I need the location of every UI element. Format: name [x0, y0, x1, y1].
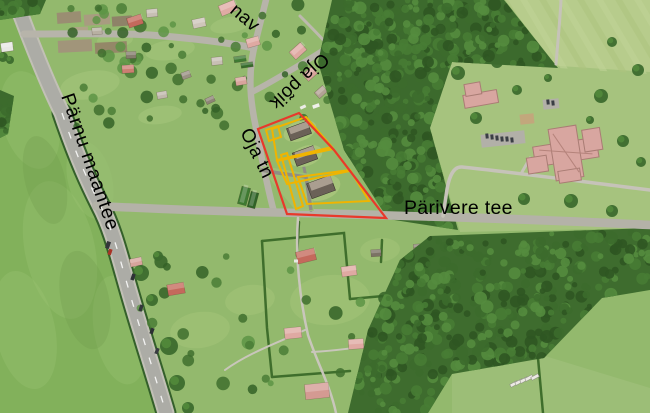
tree-blob: [483, 50, 495, 62]
tree-blob: [457, 7, 469, 19]
tree-blob: [380, 382, 392, 394]
tree-blob: [361, 158, 367, 164]
tree-blob: [486, 283, 495, 292]
tree-blob: [624, 253, 635, 264]
tree-blob: [514, 346, 525, 357]
tree-highlight: [183, 403, 190, 410]
tree-blob: [337, 72, 342, 77]
tree-blob: [355, 147, 365, 157]
tree-blob: [511, 320, 520, 329]
tree-blob: [572, 282, 577, 287]
parked-car: [546, 99, 550, 104]
tree-blob: [425, 96, 431, 102]
tree-blob: [216, 377, 230, 391]
tree-blob: [365, 80, 377, 92]
tree-blob: [412, 55, 417, 60]
tree-blob: [158, 26, 169, 37]
tree-blob: [485, 330, 493, 338]
tree-blob: [330, 72, 335, 77]
tree-blob: [361, 52, 367, 58]
tree-blob: [397, 191, 403, 197]
tree-blob: [544, 296, 550, 302]
tree-blob: [406, 280, 415, 289]
tree-blob: [396, 333, 402, 339]
tree-highlight: [545, 75, 549, 79]
tree-blob: [452, 293, 461, 302]
tree-blob: [415, 67, 427, 79]
tree-blob: [513, 40, 519, 46]
tree-blob: [400, 345, 407, 352]
street-label-parivere-tee: Pärivere tee: [404, 197, 513, 219]
parked-car: [500, 136, 504, 141]
tree-blob: [412, 91, 424, 103]
tree-blob: [347, 104, 359, 116]
tree-blob: [479, 42, 487, 50]
tree-blob: [403, 20, 411, 28]
tree-blob: [440, 68, 449, 77]
tree-blob: [147, 115, 153, 121]
tree-blob: [464, 310, 471, 317]
tree-blob: [519, 297, 525, 303]
tree-blob: [437, 288, 443, 294]
tree-blob: [637, 239, 648, 250]
tree-blob: [436, 12, 445, 21]
tree-blob: [625, 244, 635, 254]
tree-blob: [219, 120, 229, 130]
tree-highlight: [587, 117, 591, 121]
tree-blob: [386, 1, 394, 9]
tree-blob: [474, 292, 487, 305]
tree-blob: [593, 232, 604, 243]
tree-blob: [403, 114, 410, 121]
tree-blob: [423, 187, 429, 193]
tree-blob: [368, 390, 376, 398]
tree-blob: [565, 291, 574, 300]
tree-blob: [490, 22, 496, 28]
tree-blob: [351, 94, 362, 105]
school-building: [526, 155, 548, 174]
parking-lot: [543, 98, 560, 110]
tree-blob: [381, 113, 392, 124]
tree-blob: [534, 294, 542, 302]
tree-blob: [297, 26, 306, 35]
tree-blob: [380, 402, 386, 408]
tree-blob: [282, 71, 288, 77]
tree-blob: [427, 279, 437, 289]
tree-highlight: [154, 252, 160, 258]
tree-blob: [352, 5, 358, 11]
tree-blob: [3, 128, 9, 134]
tree-blob: [411, 44, 421, 54]
tree-blob: [400, 398, 406, 404]
tree-blob: [8, 6, 17, 15]
tree-blob: [567, 276, 573, 282]
tree-blob: [406, 61, 411, 66]
tree-blob: [372, 63, 382, 73]
tree-blob: [495, 308, 507, 320]
tree-blob: [363, 92, 374, 103]
tree-blob: [218, 37, 224, 43]
tree-blob: [552, 241, 560, 249]
tree-blob: [80, 84, 88, 92]
tree-blob: [518, 242, 530, 254]
tree-blob: [408, 119, 415, 126]
tree-blob: [438, 272, 450, 284]
tree-blob: [414, 353, 427, 366]
tree-blob: [141, 91, 154, 104]
tree-blob: [165, 63, 176, 74]
tree-blob: [443, 40, 454, 51]
tree-blob: [177, 328, 189, 340]
tree-blob: [402, 130, 408, 136]
tree-blob: [396, 124, 401, 129]
tree-blob: [223, 253, 230, 260]
aerial-map-screenshot: Pärnu maantee Pärivere tee Oja põik Oja …: [0, 0, 650, 413]
tree-blob: [540, 262, 547, 269]
tree-blob: [435, 24, 445, 34]
tree-blob: [587, 304, 592, 309]
tree-blob: [638, 250, 645, 257]
tree-blob: [170, 21, 176, 27]
tree-blob: [540, 288, 546, 294]
tree-blob: [394, 273, 401, 280]
tree-blob: [364, 365, 372, 373]
tree-blob: [337, 77, 342, 82]
hedge: [381, 240, 382, 262]
tree-blob: [535, 247, 548, 260]
tree-blob: [448, 303, 453, 308]
tree-blob: [238, 314, 247, 323]
tree-blob: [373, 39, 384, 50]
tree-blob: [413, 346, 418, 351]
tree-blob: [518, 307, 527, 316]
tree-blob: [1, 104, 13, 116]
tree-highlight: [595, 90, 603, 98]
tree-blob: [548, 310, 554, 316]
tree-blob: [518, 58, 523, 63]
tree-blob: [356, 67, 362, 73]
tree-blob: [423, 14, 434, 25]
tree-blob: [67, 27, 77, 37]
tree-highlight: [608, 38, 614, 44]
tree-blob: [368, 120, 374, 126]
tree-blob: [605, 231, 618, 244]
tree-blob: [379, 365, 386, 372]
tree-blob: [444, 20, 457, 33]
tree-blob: [115, 42, 125, 52]
tree-blob: [99, 9, 109, 19]
tree-blob: [595, 284, 602, 291]
tree-highlight: [607, 206, 614, 213]
parked-car: [495, 135, 499, 140]
tree-blob: [385, 18, 394, 27]
tree-blob: [505, 309, 511, 315]
tree-blob: [525, 257, 532, 264]
tree-blob: [427, 388, 435, 396]
tree-blob: [527, 41, 539, 53]
tree-blob: [411, 385, 422, 396]
tree-blob: [103, 117, 114, 128]
tree-blob: [352, 87, 358, 93]
tree-blob: [391, 56, 398, 63]
tree-blob: [610, 245, 619, 254]
tree-blob: [460, 355, 470, 365]
tree-blob: [509, 267, 521, 279]
tree-blob: [389, 70, 401, 82]
parked-car: [510, 137, 514, 142]
tree-blob: [329, 48, 337, 56]
house-roof-light: [348, 338, 363, 344]
tree-blob: [528, 344, 536, 352]
tree-blob: [441, 350, 450, 359]
tree-blob: [560, 318, 566, 324]
tree-blob: [302, 295, 312, 305]
tree-blob: [473, 271, 480, 278]
parked-car: [505, 136, 509, 141]
tree-blob: [396, 352, 408, 364]
tree-highlight: [147, 295, 154, 302]
tree-blob: [410, 27, 421, 38]
tree-blob: [359, 390, 365, 396]
tree-blob: [480, 270, 486, 276]
tree-highlight: [519, 194, 526, 201]
garden-plot: [57, 11, 82, 24]
tree-blob: [583, 246, 588, 251]
tree-blob: [231, 42, 241, 52]
tree-blob: [390, 43, 396, 49]
tree-blob: [206, 75, 215, 84]
tree-blob: [179, 95, 187, 103]
tree-blob: [452, 334, 464, 346]
tree-blob: [441, 3, 452, 14]
tree-blob: [441, 323, 451, 333]
tree-blob: [562, 241, 569, 248]
tree-blob: [535, 237, 546, 248]
tree-blob: [566, 307, 573, 314]
tree-blob: [412, 301, 424, 313]
tree-blob: [334, 33, 346, 45]
tree-blob: [412, 186, 417, 191]
tree-blob: [411, 13, 418, 20]
house-roof-light: [371, 249, 381, 253]
tree-highlight: [513, 86, 519, 92]
tree-blob: [94, 105, 105, 116]
tree-blob: [382, 87, 390, 95]
tree-blob: [498, 290, 510, 302]
tree-blob: [262, 41, 272, 51]
tree-blob: [287, 266, 295, 274]
tree-blob: [356, 297, 366, 307]
tree-blob: [357, 24, 363, 30]
tree-blob: [535, 329, 543, 337]
tree-blob: [434, 324, 440, 330]
tree-blob: [146, 67, 158, 79]
tree-blob: [105, 28, 112, 35]
tree-blob: [469, 331, 477, 339]
garden-plot: [58, 39, 93, 53]
tree-blob: [487, 313, 497, 323]
aerial-map-canvas[interactable]: Pärnu maantee Pärivere tee Oja põik Oja …: [0, 0, 650, 413]
tree-blob: [407, 134, 415, 142]
tree-blob: [89, 94, 98, 103]
tree-blob: [67, 5, 74, 12]
tree-blob: [586, 285, 591, 290]
tree-blob: [453, 303, 463, 313]
parked-car: [551, 100, 555, 105]
tree-blob: [501, 238, 507, 244]
tree-blob: [372, 56, 379, 63]
sports-court: [520, 113, 535, 124]
tree-blob: [147, 318, 157, 328]
tree-blob: [436, 238, 442, 244]
tree-blob: [526, 330, 536, 340]
tree-blob: [506, 336, 518, 348]
tree-blob: [446, 238, 454, 246]
vehicle: [294, 260, 298, 263]
tree-blob: [466, 50, 471, 55]
tree-blob: [338, 87, 345, 94]
tree-highlight: [633, 65, 640, 72]
tree-highlight: [7, 57, 11, 61]
tree-blob: [403, 34, 408, 39]
tree-highlight: [161, 338, 171, 348]
tree-blob: [421, 24, 430, 33]
tree-blob: [390, 179, 396, 185]
tree-blob: [501, 301, 508, 308]
tree-blob: [550, 249, 556, 255]
tree-highlight: [134, 266, 143, 275]
tree-blob: [268, 380, 274, 386]
tree-blob: [356, 56, 368, 68]
tree-blob: [406, 288, 415, 297]
tree-blob: [386, 296, 391, 301]
tree-blob: [116, 3, 127, 14]
tree-blob: [498, 328, 504, 334]
tree-blob: [425, 261, 431, 267]
tree-highlight: [565, 195, 573, 203]
tree-blob: [495, 42, 501, 48]
tree-blob: [447, 246, 453, 252]
tree-blob: [366, 21, 372, 27]
tree-blob: [142, 43, 152, 53]
tree-blob: [410, 261, 415, 266]
tree-blob: [417, 333, 427, 343]
tree-blob: [387, 94, 392, 99]
tree-blob: [380, 137, 392, 149]
tree-blob: [370, 3, 380, 13]
tree-blob: [487, 248, 494, 255]
tree-blob: [350, 114, 363, 127]
parked-car: [490, 134, 494, 139]
tree-blob: [245, 341, 254, 350]
tree-blob: [92, 16, 100, 24]
tree-blob: [169, 43, 174, 48]
tree-blob: [482, 240, 488, 246]
tree-blob: [548, 254, 557, 263]
tree-blob: [599, 267, 609, 277]
tree-blob: [417, 154, 426, 163]
tree-blob: [380, 128, 390, 138]
tree-blob: [577, 262, 585, 270]
tree-blob: [552, 273, 560, 281]
tree-blob: [428, 72, 439, 83]
tree-blob: [449, 15, 456, 22]
tree-blob: [458, 241, 464, 247]
tree-blob: [382, 350, 388, 356]
tree-blob: [427, 3, 433, 9]
tree-blob: [338, 17, 350, 29]
tree-blob: [554, 328, 565, 339]
tree-blob: [340, 54, 352, 66]
tree-blob: [163, 263, 171, 271]
tree-blob: [117, 27, 128, 38]
tree-blob: [370, 377, 376, 383]
tree-blob: [377, 50, 383, 56]
tree-blob: [398, 103, 407, 112]
tree-blob: [401, 5, 409, 13]
tree-blob: [498, 15, 506, 23]
tree-blob: [530, 302, 540, 312]
tree-blob: [368, 332, 373, 337]
tree-blob: [248, 385, 258, 395]
tree-blob: [368, 142, 375, 149]
tree-blob: [477, 340, 489, 352]
school-annex: [464, 82, 482, 97]
tree-blob: [416, 19, 423, 26]
tree-blob: [211, 104, 220, 113]
tree-blob: [336, 368, 345, 377]
tree-blob: [446, 334, 452, 340]
tree-blob: [521, 279, 530, 288]
house-roof-light: [126, 51, 136, 55]
tree-blob: [414, 113, 420, 119]
tree-blob: [583, 291, 590, 298]
tree-blob: [338, 95, 348, 105]
tree-blob: [422, 56, 434, 68]
tree-blob: [500, 259, 507, 266]
tree-blob: [379, 308, 391, 320]
tree-blob: [521, 268, 527, 274]
tree-blob: [431, 334, 442, 345]
tree-blob: [279, 345, 289, 355]
tree-blob: [211, 277, 221, 287]
tree-blob: [407, 173, 418, 184]
tree-blob: [417, 278, 426, 287]
tree-blob: [386, 34, 397, 45]
tree-blob: [375, 99, 381, 105]
tree-blob: [202, 108, 208, 114]
tree-blob: [98, 49, 107, 58]
tree-highlight: [452, 67, 460, 75]
tree-blob: [598, 253, 604, 259]
tree-blob: [430, 294, 436, 300]
tree-blob: [386, 158, 398, 170]
tree-blob: [636, 273, 648, 285]
tree-blob: [439, 256, 450, 267]
tree-blob: [561, 258, 570, 267]
tree-blob: [414, 320, 421, 327]
tree-blob: [401, 324, 412, 335]
parked-car: [485, 133, 489, 138]
house-roof-light: [122, 65, 134, 70]
tree-highlight: [471, 113, 478, 120]
tree-blob: [564, 283, 571, 290]
tree-highlight: [618, 136, 625, 143]
tree-blob: [418, 287, 428, 297]
tree-blob: [485, 259, 492, 266]
school-building: [582, 127, 603, 152]
tree-blob: [479, 5, 489, 15]
